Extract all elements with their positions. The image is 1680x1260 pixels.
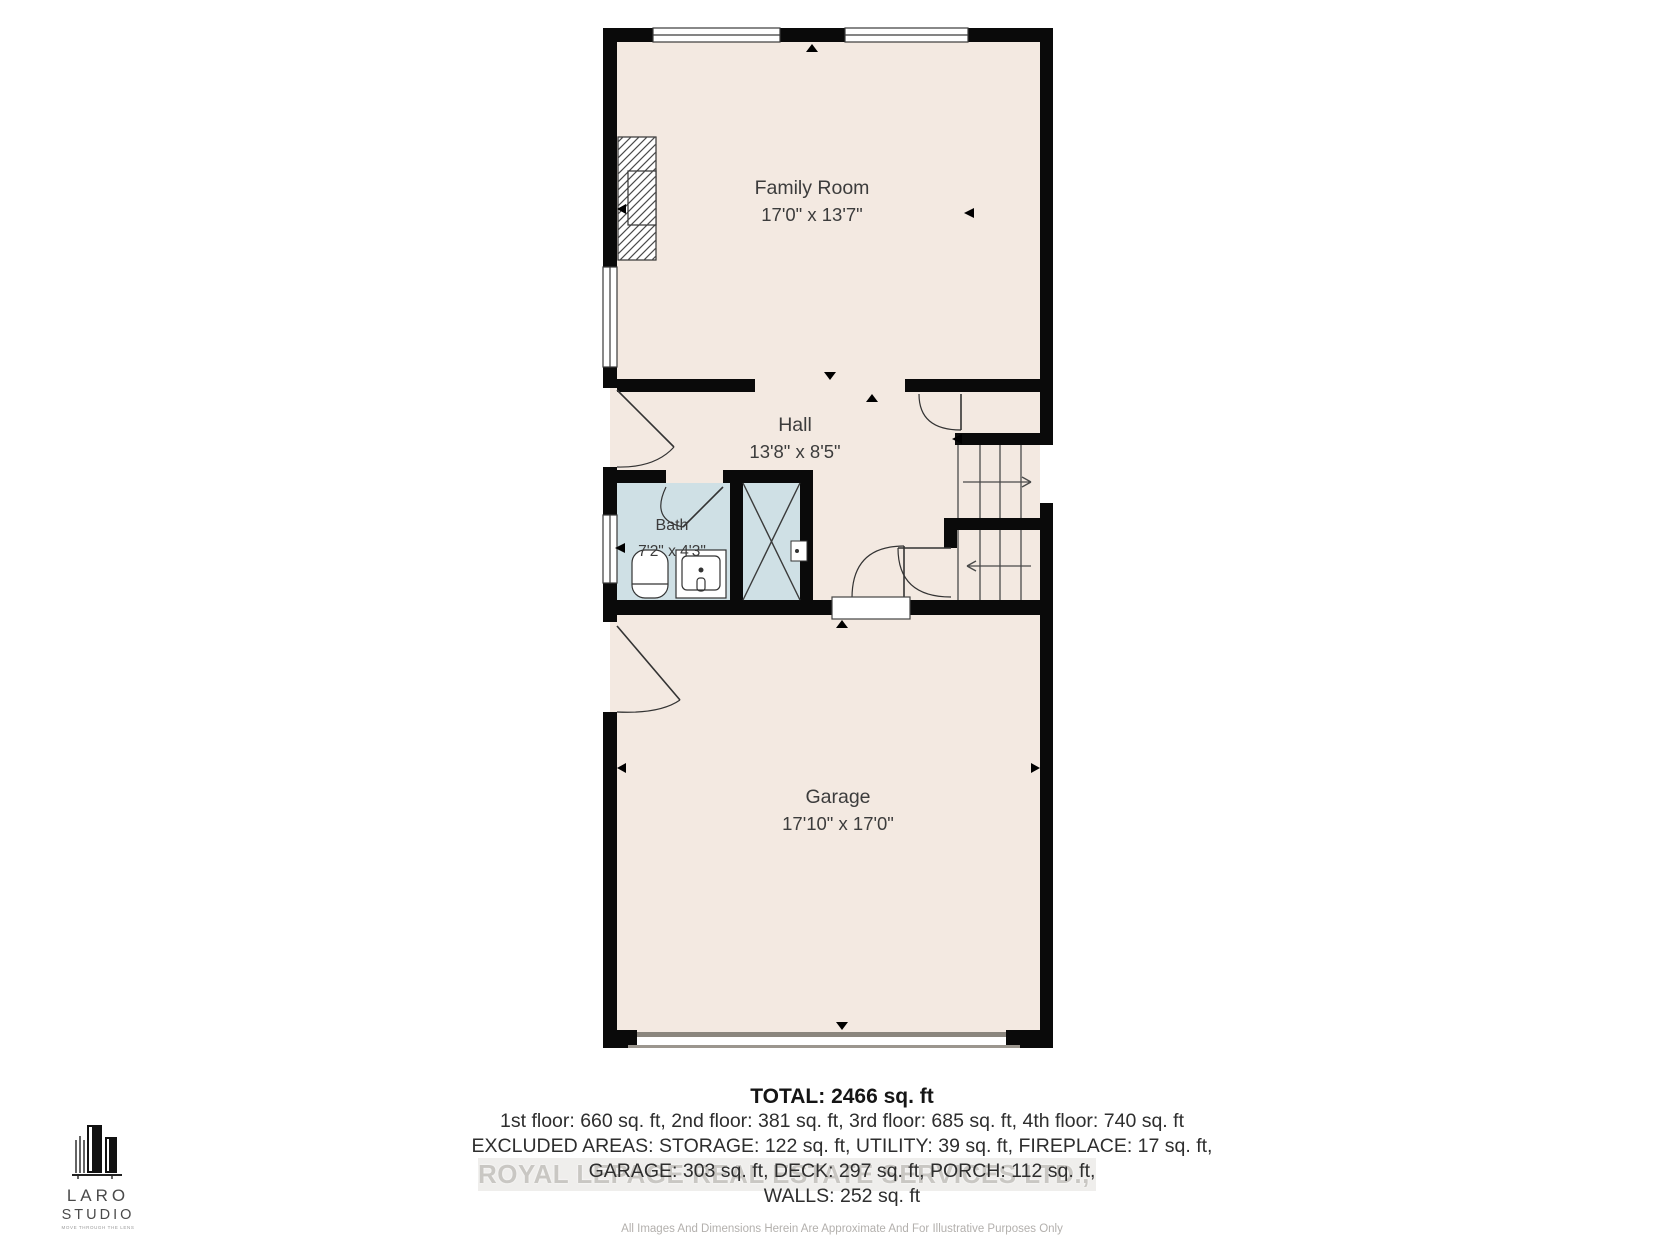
hall-dims: 13'8" x 8'5" — [749, 441, 840, 462]
studio-logo: LARO STUDIO MOVE THROUGH THE LENS — [46, 1122, 150, 1230]
family-room-dims: 17'0" x 13'7" — [761, 204, 862, 225]
logo-name-top: LARO — [46, 1186, 150, 1206]
window-family-room-left — [603, 267, 617, 367]
buildings-icon — [72, 1122, 124, 1180]
logo-tagline: MOVE THROUGH THE LENS — [46, 1225, 150, 1230]
window-top-left — [653, 28, 780, 42]
total-area: TOTAL: 2466 sq. ft — [0, 1084, 1680, 1109]
floor-plan-page: Family Room 17'0" x 13'7" Hall 13'8" x 8… — [0, 0, 1680, 1260]
bath-label: Bath — [656, 517, 689, 534]
family-room-label: Family Room — [755, 177, 870, 199]
logo-name-bottom: STUDIO — [46, 1207, 150, 1223]
bath-dims: 7'2" x 4'3" — [638, 543, 706, 560]
garage-label: Garage — [805, 786, 870, 808]
garage-dims: 17'10" x 17'0" — [782, 813, 894, 834]
hall-label: Hall — [778, 414, 812, 436]
excluded-areas-line-2: GARAGE: 303 sq. ft, DECK: 297 sq. ft, PO… — [0, 1159, 1680, 1184]
storage-latch — [791, 541, 807, 561]
window-bath-left — [603, 515, 617, 583]
fireplace — [618, 137, 656, 260]
floor-plan-drawing: Family Room 17'0" x 13'7" Hall 13'8" x 8… — [0, 0, 1680, 1260]
floor-areas-line: 1st floor: 660 sq. ft, 2nd floor: 381 sq… — [0, 1109, 1680, 1134]
walls-area-line: WALLS: 252 sq. ft — [0, 1184, 1680, 1209]
garage-step — [832, 597, 910, 619]
disclaimer-text: All Images And Dimensions Herein Are App… — [0, 1223, 1680, 1235]
garage-door — [628, 1032, 1020, 1048]
area-summary: TOTAL: 2466 sq. ft 1st floor: 660 sq. ft… — [0, 1084, 1680, 1209]
window-top-right — [845, 28, 968, 42]
excluded-areas-line: EXCLUDED AREAS: STORAGE: 122 sq. ft, UTI… — [0, 1134, 1680, 1159]
